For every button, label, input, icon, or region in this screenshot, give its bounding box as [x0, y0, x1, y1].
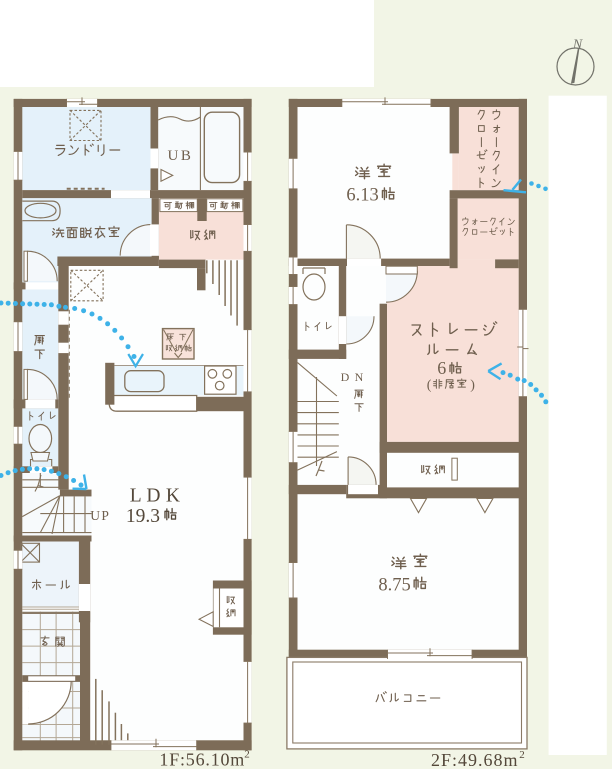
svg-text:UP: UP — [90, 508, 110, 523]
svg-text:8.75: 8.75 — [378, 576, 410, 596]
svg-text:(: ( — [427, 378, 432, 393]
svg-text:): ) — [470, 378, 475, 393]
svg-text:N: N — [572, 37, 583, 52]
svg-text:19.3: 19.3 — [126, 506, 160, 527]
svg-text:2: 2 — [519, 749, 525, 761]
svg-text:2F:49.68m: 2F:49.68m — [431, 750, 519, 769]
svg-text:UB: UB — [168, 148, 194, 164]
svg-text:1F:56.10m: 1F:56.10m — [159, 750, 245, 769]
svg-text:D N: D N — [341, 370, 365, 384]
svg-text:L D K: L D K — [130, 486, 181, 507]
svg-text:2: 2 — [244, 748, 250, 760]
svg-text:6.13: 6.13 — [346, 186, 378, 206]
svg-text:6: 6 — [437, 358, 446, 378]
